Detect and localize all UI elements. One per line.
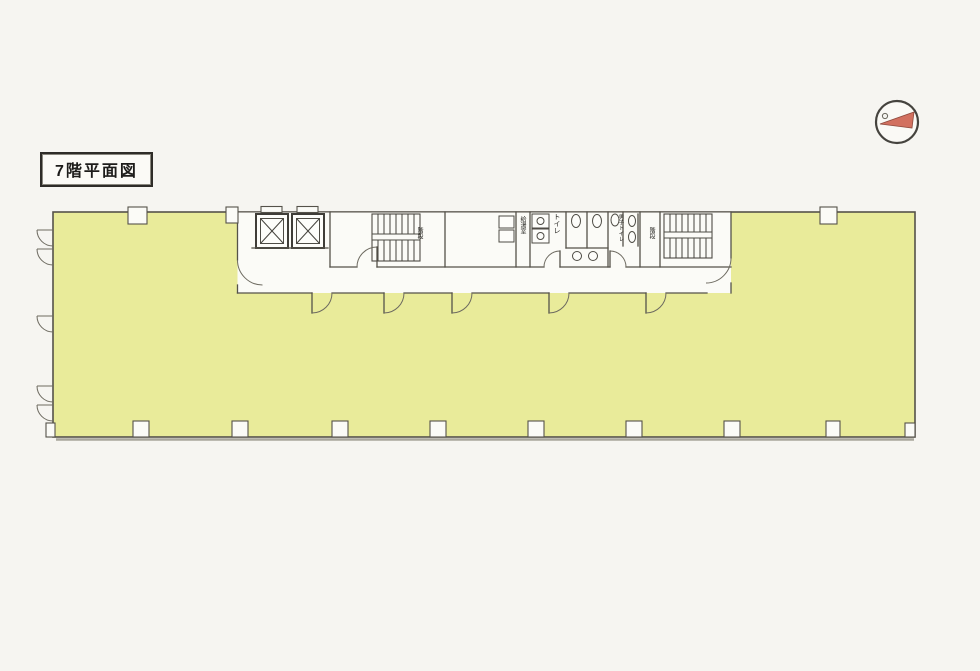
kitchenette-label: 給湯室 — [519, 216, 525, 234]
stairs-west-label: 階段 — [416, 227, 422, 239]
sink — [573, 252, 582, 261]
urinal — [629, 216, 636, 227]
urinal — [629, 232, 636, 243]
window-swings-west — [37, 230, 53, 421]
sink — [589, 252, 598, 261]
floor-plan — [0, 0, 980, 671]
toilet-label: トイレ — [553, 213, 560, 234]
toilet-men-label: 男子トイレ — [617, 214, 623, 242]
elevator-shaft-2 — [292, 214, 324, 248]
scanned-floorplan-page: 7階平面図 — [0, 0, 980, 671]
stairs-east-label: 階段 — [648, 227, 654, 239]
toilet-fixture — [593, 215, 602, 228]
elevator-shaft-1 — [256, 214, 288, 248]
toilet-fixture — [572, 215, 581, 228]
